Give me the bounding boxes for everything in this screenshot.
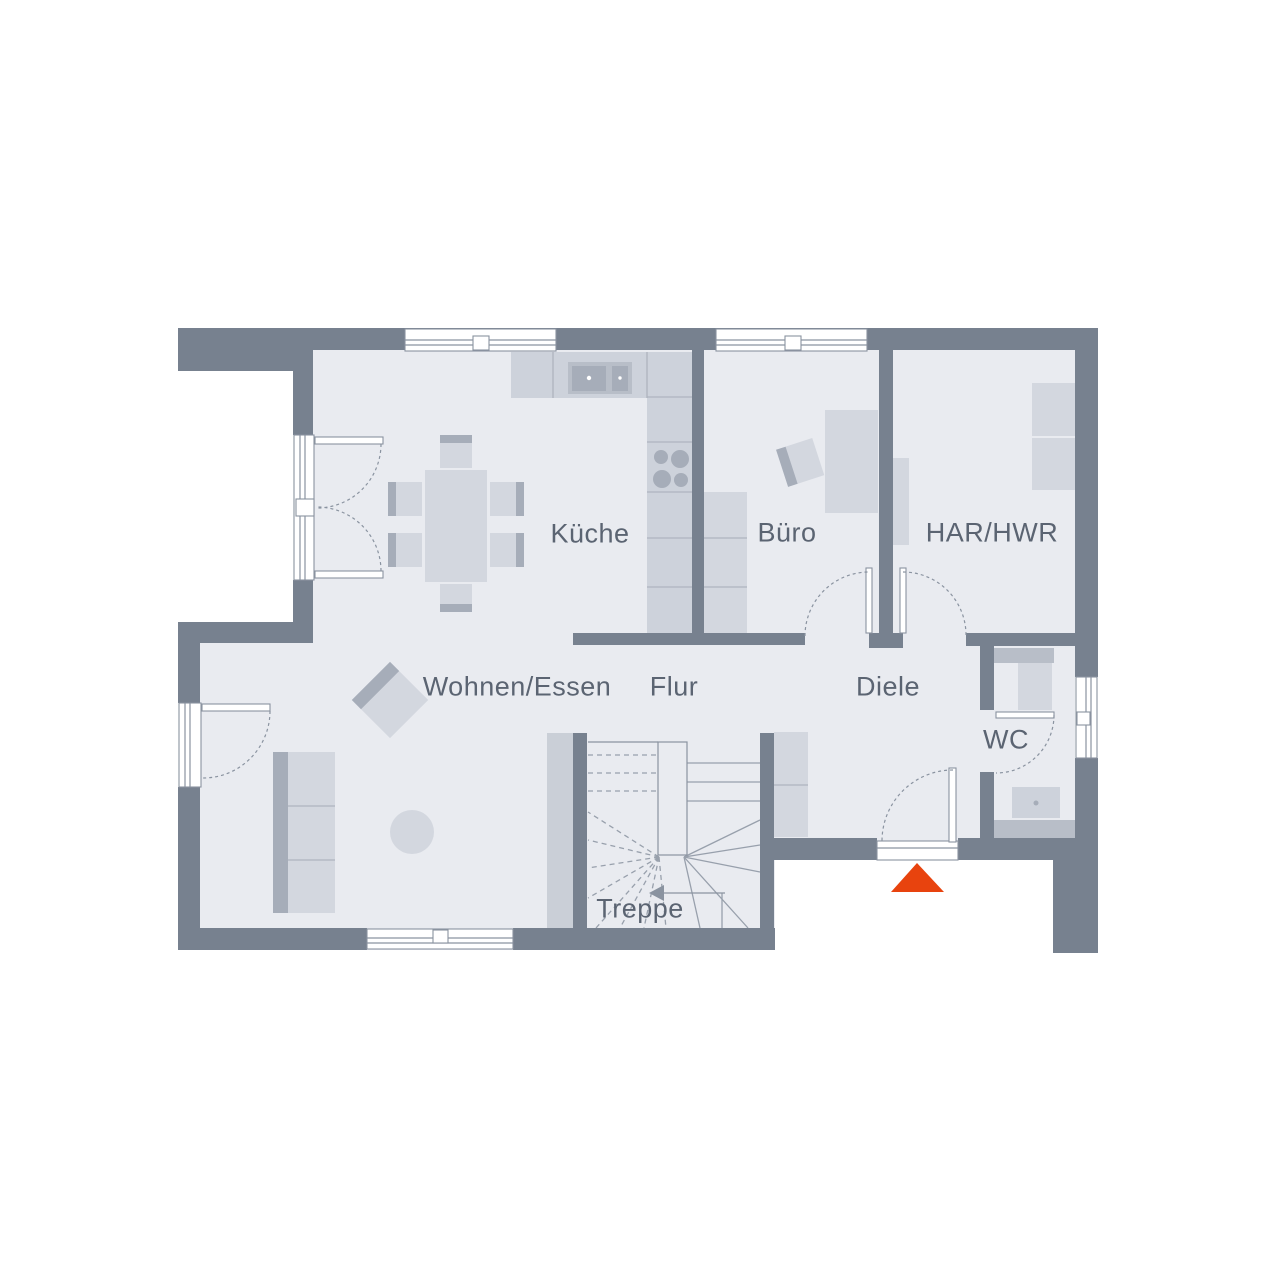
room-label-flur: Flur bbox=[650, 672, 699, 703]
room-label-diele: Diele bbox=[856, 672, 920, 703]
window-bottom bbox=[367, 929, 513, 949]
dining-table bbox=[425, 470, 487, 582]
kitchen-sink bbox=[568, 362, 632, 394]
room-label-treppe: Treppe bbox=[596, 894, 684, 925]
wardrobe bbox=[774, 732, 808, 837]
window-top-left bbox=[405, 329, 556, 351]
window-top-right bbox=[716, 329, 867, 351]
floorplan-drawing bbox=[0, 0, 1280, 1280]
office-desk bbox=[825, 410, 878, 513]
room-label-wc: WC bbox=[983, 725, 1029, 756]
sideboard bbox=[547, 733, 573, 930]
room-label-buero: Büro bbox=[757, 518, 816, 549]
sofa bbox=[273, 752, 335, 913]
floorplan-canvas: Küche Büro HAR/HWR Wohnen/Essen Flur Die… bbox=[0, 0, 1280, 1280]
coffee-table bbox=[390, 810, 434, 854]
office-shelf bbox=[704, 492, 747, 635]
entrance-marker-icon bbox=[891, 863, 944, 892]
room-label-kueche: Küche bbox=[550, 519, 629, 550]
room-label-har-hwr: HAR/HWR bbox=[926, 518, 1059, 549]
room-label-wohnen-essen: Wohnen/Essen bbox=[423, 672, 612, 703]
window-wc bbox=[1076, 677, 1097, 758]
